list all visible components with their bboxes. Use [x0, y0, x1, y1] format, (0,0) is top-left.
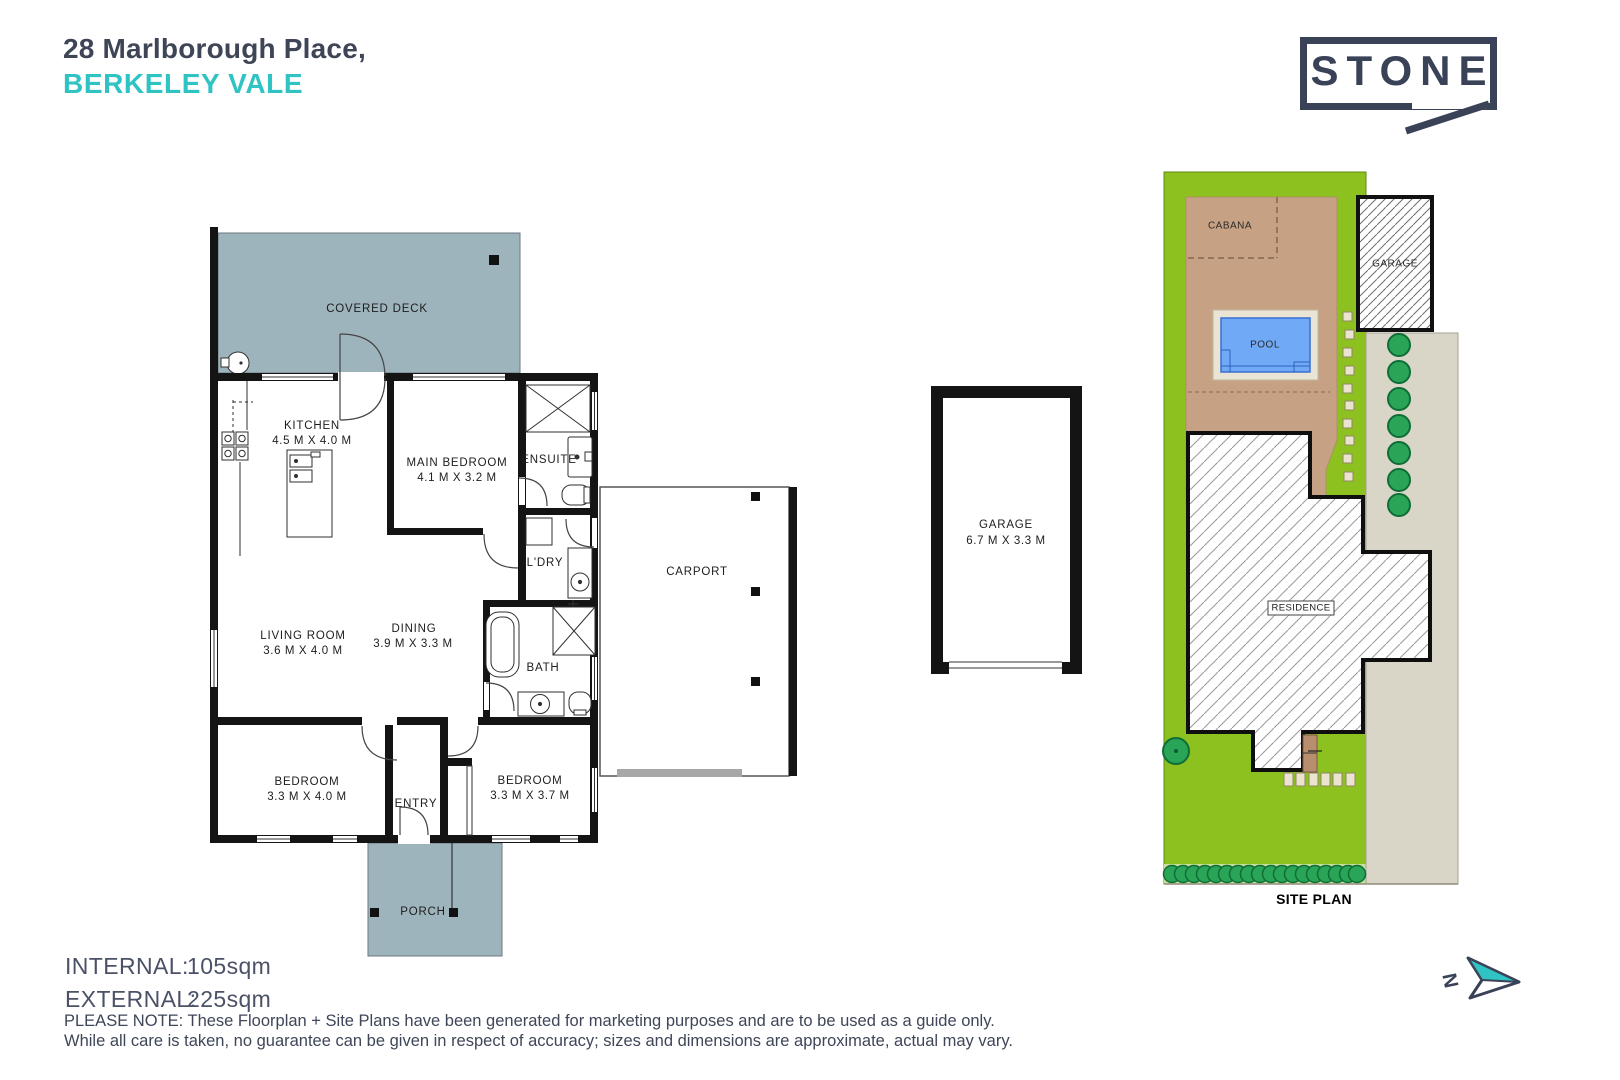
room-dims-living-room: 3.6 M X 4.0 M	[263, 645, 342, 657]
plans-graphic: N	[0, 0, 1620, 1080]
external-area-value: 225sqm	[187, 986, 271, 1013]
room-dims-dining: 3.9 M X 3.3 M	[373, 638, 452, 650]
floorplan-drawing	[210, 227, 797, 956]
room-label-covered-deck: COVERED DECK	[326, 303, 428, 315]
room-dims-main-bedroom: 4.1 M X 3.2 M	[417, 472, 496, 484]
room-label-porch: PORCH	[400, 906, 446, 918]
site-label-pool: POOL	[1250, 340, 1280, 351]
room-label-kitchen: KITCHEN	[284, 420, 340, 432]
site-label-cabana: CABANA	[1208, 221, 1252, 232]
disclaimer-line-2: While all care is taken, no guarantee ca…	[64, 1032, 1013, 1052]
room-label-bath: BATH	[526, 662, 559, 674]
room-label-main-bedroom: MAIN BEDROOM	[407, 457, 508, 469]
carport-structure	[600, 487, 797, 777]
site-plan-caption: SITE PLAN	[1276, 891, 1352, 907]
north-arrow-icon: N	[1437, 958, 1519, 998]
stone-logo-text: STONE	[1300, 39, 1497, 103]
room-label-entry: ENTRY	[395, 798, 438, 810]
room-label-carport: CARPORT	[666, 566, 728, 578]
internal-area-row: INTERNAL: 105sqm	[65, 953, 271, 980]
garage-plan-dims: 6.7 M X 3.3 M	[966, 535, 1045, 547]
disclaimer-line-1: PLEASE NOTE: These Floorplan + Site Plan…	[64, 1012, 1013, 1032]
room-dims-bedroom-left: 3.3 M X 4.0 M	[267, 791, 346, 803]
porch-area	[368, 843, 502, 956]
site-plan-drawing	[1163, 172, 1458, 884]
internal-area-value: 105sqm	[187, 953, 271, 980]
internal-area-label: INTERNAL:	[65, 953, 187, 980]
garage-plan-label: GARAGE	[979, 519, 1033, 531]
external-area-row: EXTERNAL: 225sqm	[65, 986, 271, 1013]
kitchen-fixtures	[222, 381, 332, 556]
room-dims-bedroom-right: 3.3 M X 3.7 M	[490, 790, 569, 802]
ensuite-fixtures	[526, 385, 592, 505]
room-label-laundry: L'DRY	[527, 557, 564, 569]
area-summary: INTERNAL: 105sqm EXTERNAL: 225sqm	[65, 953, 271, 1019]
room-label-bedroom-left: BEDROOM	[274, 776, 339, 788]
site-label-residence: RESIDENCE	[1267, 601, 1334, 616]
hedge-row	[1164, 866, 1366, 883]
room-dims-kitchen: 4.5 M X 4.0 M	[272, 435, 351, 447]
external-area-label: EXTERNAL:	[65, 986, 187, 1013]
room-label-living-room: LIVING ROOM	[260, 630, 345, 642]
floorplan-page: 28 Marlborough Place, BERKELEY VALE	[0, 0, 1620, 1080]
disclaimer: PLEASE NOTE: These Floorplan + Site Plan…	[64, 1012, 1013, 1051]
room-label-ensuite: ENSUITE	[521, 454, 576, 466]
site-label-garage: GARAGE	[1372, 259, 1418, 270]
north-label: N	[1437, 971, 1462, 990]
room-label-bedroom-right: BEDROOM	[497, 775, 562, 787]
room-label-dining: DINING	[391, 623, 436, 635]
